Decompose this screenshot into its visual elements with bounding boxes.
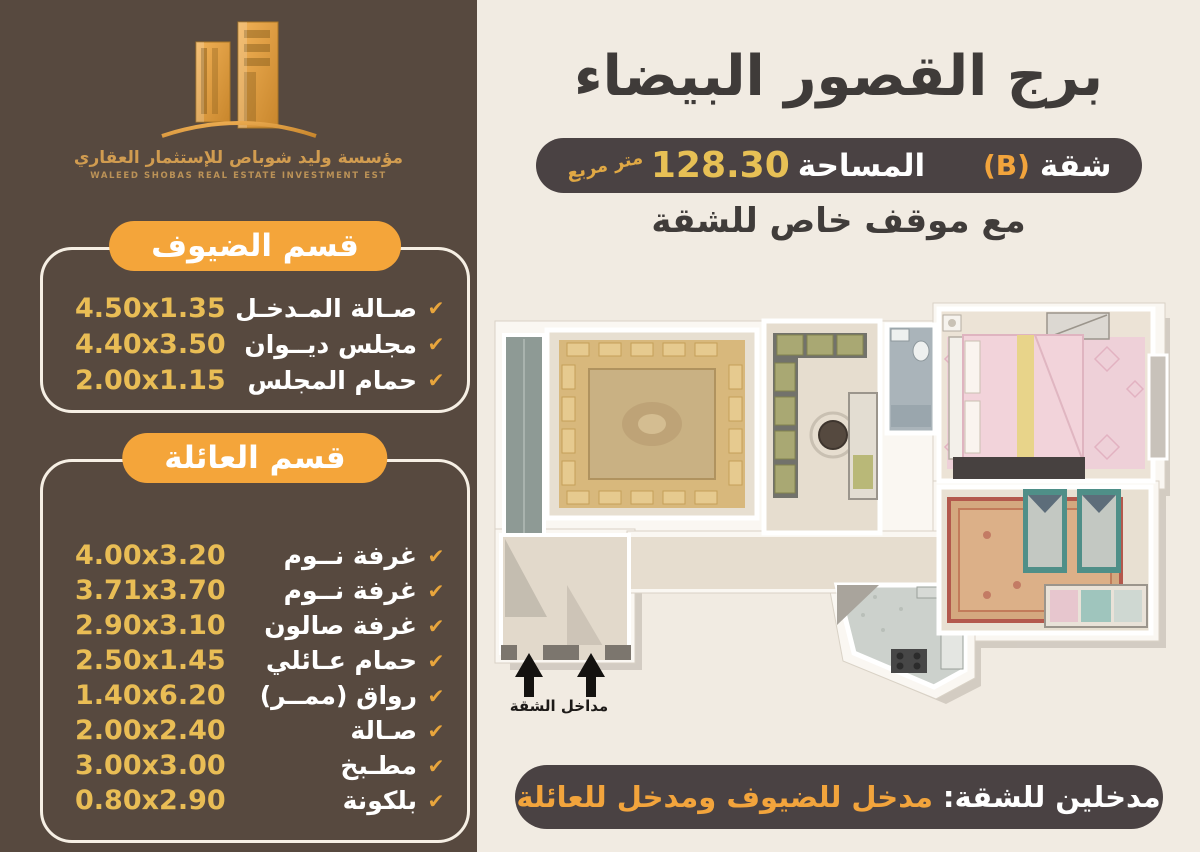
apartment-label: شقة <box>1040 148 1112 184</box>
room-spec-row: 2.50x1.45 حمام عـائلي ✔ <box>61 643 455 678</box>
room-spec-row: 2.00x1.15 حمام المجلس ✔ <box>61 362 455 398</box>
entrances-label: مداخل الشقة <box>510 697 608 715</box>
floor-plan-svg: مداخل الشقة <box>487 285 1187 715</box>
kids-bedroom <box>939 487 1151 633</box>
sidebar: مؤسسة وليد شوباص للإستثمار العقاري WALEE… <box>0 0 477 852</box>
entrance-corridor <box>501 535 631 660</box>
room-label: رواق (ممــر) <box>231 681 417 710</box>
section-family: قسم العائلة 4.00x3.20 غرفة نــوم ✔ 3.71x… <box>40 459 470 843</box>
brand-logo: مؤسسة وليد شوباص للإستثمار العقاري WALEE… <box>0 0 477 181</box>
room-dimensions: 2.00x2.40 <box>61 715 231 746</box>
brand-name-arabic: مؤسسة وليد شوباص للإستثمار العقاري <box>0 148 477 168</box>
room-spec-row: 2.90x3.10 غرفة صالون ✔ <box>61 608 455 643</box>
room-dimensions: 2.90x3.10 <box>61 610 231 641</box>
section-guests: قسم الضيوف 4.50x1.35 صـالة المـدخـل ✔ 4.… <box>40 247 470 413</box>
checkmark-icon: ✔ <box>417 544 455 568</box>
checkmark-icon: ✔ <box>417 649 455 673</box>
room-dimensions: 1.40x6.20 <box>61 680 231 711</box>
area-unit: متر مربع <box>564 147 644 184</box>
room-spec-row: 4.40x3.50 مجلس ديــوان ✔ <box>61 326 455 362</box>
room-spec-row: 4.50x1.35 صـالة المـدخـل ✔ <box>61 290 455 326</box>
main-panel: برج القصور البيضاء شقة (B) المساحة 128.3… <box>477 0 1200 852</box>
checkmark-icon: ✔ <box>417 789 455 813</box>
apartment-unit: (B) <box>983 149 1030 182</box>
brand-name-english: WALEED SHOBAS REAL ESTATE INVESTMENT EST <box>0 171 477 181</box>
room-label: مطـبخ <box>231 751 417 780</box>
room-spec-row: 3.71x3.70 غرفة نــوم ✔ <box>61 573 455 608</box>
parking-note: مع موقف خاص للشقة <box>477 201 1200 241</box>
room-dimensions: 2.00x1.15 <box>61 365 231 396</box>
room-label: غرفة نــوم <box>231 576 417 605</box>
guest-bathroom <box>887 325 935 433</box>
section-guests-title: قسم الضيوف <box>109 221 401 271</box>
room-spec-row: 4.00x3.20 غرفة نــوم ✔ <box>61 538 455 573</box>
room-label: غرفة نــوم <box>231 541 417 570</box>
apartment-info-pill: شقة (B) المساحة 128.30 متر مربع <box>536 138 1142 193</box>
room-label: مجلس ديــوان <box>231 330 417 359</box>
checkmark-icon: ✔ <box>417 719 455 743</box>
room-dimensions: 2.50x1.45 <box>61 645 231 676</box>
room-spec-row: 2.00x2.40 صـالة ✔ <box>61 713 455 748</box>
checkmark-icon: ✔ <box>417 614 455 638</box>
room-dimensions: 3.00x3.00 <box>61 750 231 781</box>
floor-plan-image: مداخل الشقة <box>487 285 1200 719</box>
hallway <box>631 537 941 589</box>
footer-banner: مدخلين للشقة: مدخل للضيوف ومدخل للعائلة <box>515 765 1163 829</box>
checkmark-icon: ✔ <box>417 754 455 778</box>
checkmark-icon: ✔ <box>417 296 455 320</box>
section-family-title: قسم العائلة <box>122 433 387 483</box>
checkmark-icon: ✔ <box>417 332 455 356</box>
room-spec-row: 1.40x6.20 رواق (ممــر) ✔ <box>61 678 455 713</box>
room-label: بلكونة <box>231 786 417 815</box>
entrances-note-highlight: مدخل للضيوف ومدخل للعائلة <box>516 780 933 814</box>
checkmark-icon: ✔ <box>417 368 455 392</box>
checkmark-icon: ✔ <box>417 579 455 603</box>
area-value: 128.30 <box>651 145 790 186</box>
room-dimensions: 3.71x3.70 <box>61 575 231 606</box>
room-dimensions: 0.80x2.90 <box>61 785 231 816</box>
room-spec-row: 0.80x2.90 بلكونة ✔ <box>61 783 455 818</box>
room-spec-row: 3.00x3.00 مطـبخ ✔ <box>61 748 455 783</box>
room-label: حمام المجلس <box>231 366 417 395</box>
entrances-note-prefix: مدخلين للشقة: <box>943 780 1161 814</box>
room-label: صـالة <box>231 716 417 745</box>
majlis-room <box>547 330 757 518</box>
room-dimensions: 4.40x3.50 <box>61 329 231 360</box>
page-title: برج القصور البيضاء <box>477 28 1200 126</box>
logo-arc <box>162 123 316 136</box>
area-label: المساحة <box>798 148 925 184</box>
entry-hall <box>764 321 880 533</box>
checkmark-icon: ✔ <box>417 684 455 708</box>
buildings-logo-icon <box>154 14 324 142</box>
room-label: غرفة صالون <box>231 611 417 640</box>
master-bedroom <box>939 309 1167 481</box>
room-label: حمام عـائلي <box>231 646 417 675</box>
room-label: صـالة المـدخـل <box>231 294 417 323</box>
room-dimensions: 4.50x1.35 <box>61 293 231 324</box>
room-dimensions: 4.00x3.20 <box>61 540 231 571</box>
